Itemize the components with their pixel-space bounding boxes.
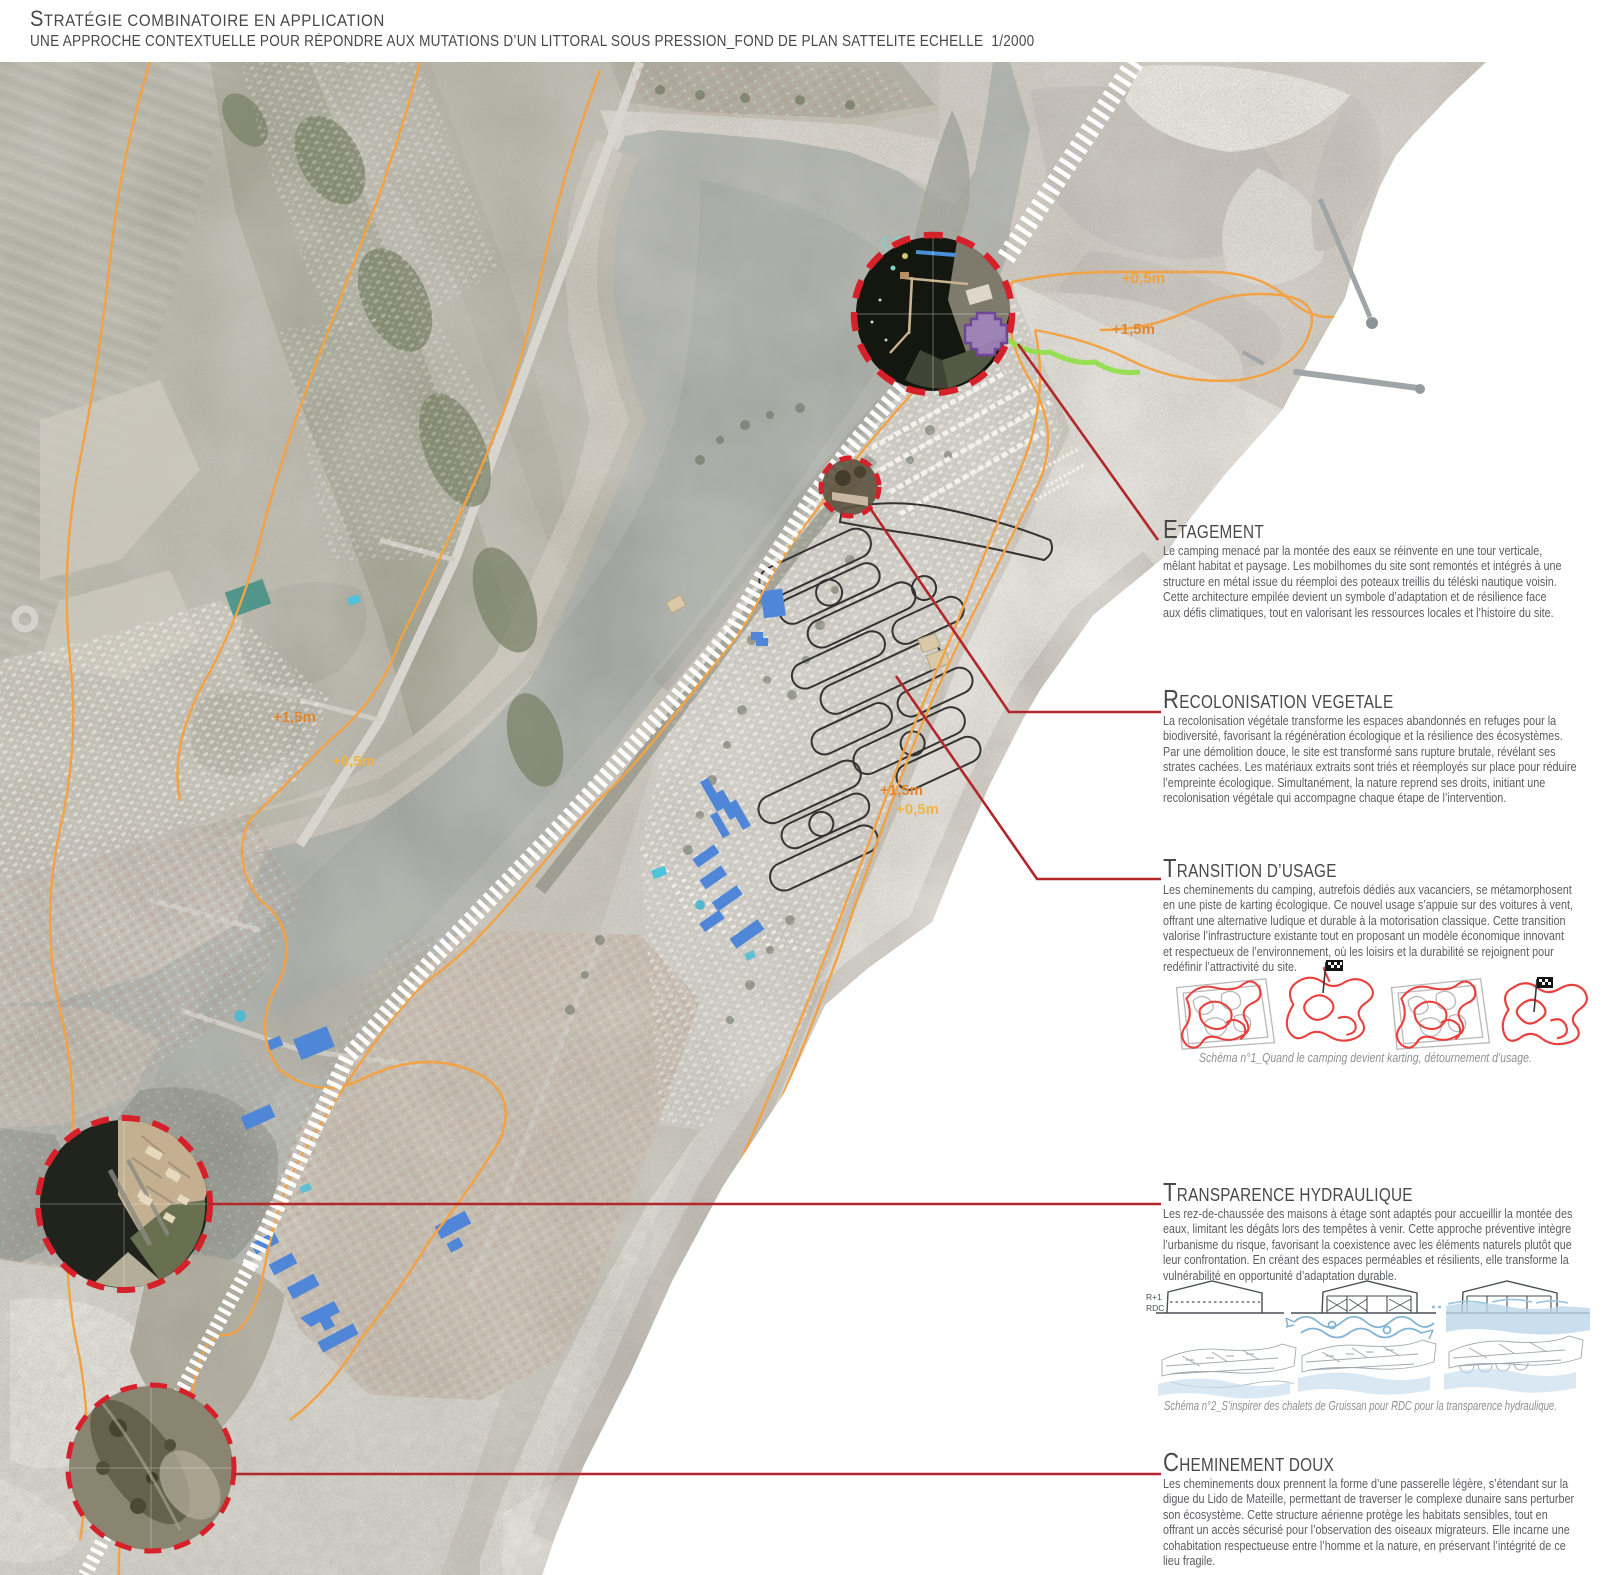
svg-text:+0,5m: +0,5m [1122,270,1165,287]
svg-text:+1,5m: +1,5m [1112,321,1155,338]
svg-text:+0,5m: +0,5m [332,753,375,770]
svg-text:+1,5m: +1,5m [880,782,923,799]
svg-text:RDC: RDC [1146,1303,1164,1313]
svg-text:+0,5m: +0,5m [896,801,939,818]
svg-text:R+1: R+1 [1146,1292,1162,1302]
svg-text:+1,5m: +1,5m [273,709,316,726]
